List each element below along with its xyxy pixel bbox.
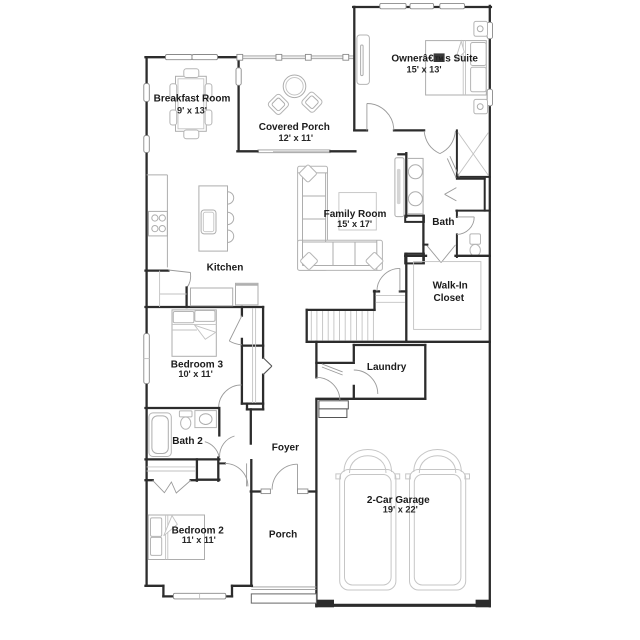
svg-text:Bath 2: Bath 2 — [172, 436, 203, 447]
svg-text:Foyer: Foyer — [272, 442, 299, 453]
svg-text:15' x 13': 15' x 13' — [406, 65, 441, 75]
svg-text:Breakfast Room: Breakfast Room — [154, 93, 231, 104]
svg-text:Closet: Closet — [434, 293, 465, 304]
svg-text:Family Room: Family Room — [324, 209, 387, 220]
svg-text:Laundry: Laundry — [367, 362, 407, 373]
svg-text:s Suite: s Suite — [445, 54, 478, 65]
svg-text:19' x 22': 19' x 22' — [383, 504, 418, 514]
svg-text:Bath: Bath — [432, 217, 454, 228]
svg-text:Ownerâ€: Ownerâ€ — [391, 54, 434, 65]
svg-text:Covered Porch: Covered Porch — [259, 122, 330, 133]
svg-text:15' x 17': 15' x 17' — [337, 219, 372, 229]
svg-text:9' x 13': 9' x 13' — [177, 105, 207, 115]
svg-text:10' x 11': 10' x 11' — [178, 369, 213, 379]
svg-text:11' x 11': 11' x 11' — [182, 535, 216, 545]
svg-text:Kitchen: Kitchen — [207, 262, 244, 273]
svg-text:12' x 11': 12' x 11' — [279, 133, 314, 143]
svg-text:Walk-In: Walk-In — [433, 280, 468, 291]
svg-text:Porch: Porch — [269, 529, 297, 540]
svg-text:TM: TM — [435, 56, 443, 62]
